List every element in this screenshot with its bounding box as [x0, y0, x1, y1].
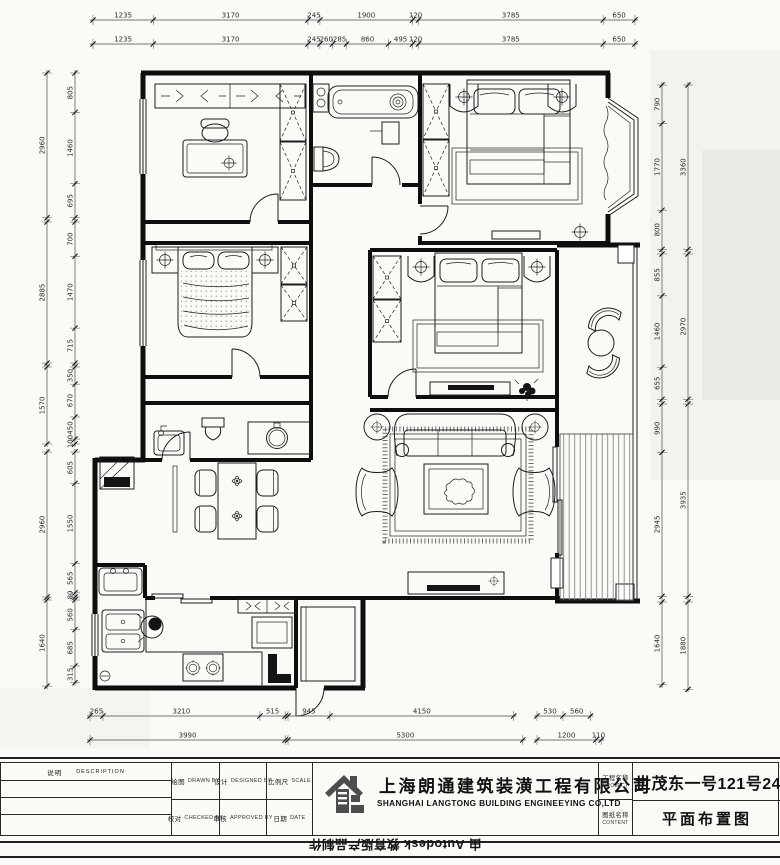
wok: [137, 614, 163, 642]
dim-label: 2885: [39, 284, 47, 302]
dim-chain-right: 2970: [680, 251, 694, 402]
project-content-label-cell: 工程名称 PROJECT 图纸名称 CONTENT: [599, 763, 633, 835]
dining-area: [100, 457, 278, 539]
dim-label: 1880: [680, 637, 688, 655]
balcony-post: [618, 245, 634, 263]
dim-chain-top: 123531702452602858604951203785650: [90, 36, 638, 50]
corner-sink: [313, 84, 329, 112]
dim-chain-right: 1880: [680, 599, 694, 692]
row-divider: [1, 780, 171, 781]
double-sink: [102, 610, 144, 652]
dim-label: 495: [394, 36, 407, 44]
dim-label: 805: [67, 86, 75, 99]
door-study: [250, 194, 278, 222]
kitchen-table: [252, 617, 292, 648]
drawn-checked-cell: 绘图 DRAWN BY 校对 CHECKED BY: [172, 763, 220, 835]
guest-bathroom: [154, 418, 310, 455]
dim-label: 1200: [557, 732, 575, 740]
title-block: 说明 DESCRIPTION 绘图 DRAWN BY 校对 CHECKED BY…: [0, 755, 780, 865]
walls: [95, 73, 640, 690]
dim-chain-left: 350670450100: [67, 364, 81, 448]
sofa: [394, 414, 515, 457]
nightstand-right: [252, 247, 278, 273]
dim-label: 790: [654, 98, 662, 111]
tv-console-bedroom3: [430, 382, 510, 395]
dim-label: 855: [654, 268, 662, 281]
dim-label: 655: [654, 377, 662, 390]
dim-label: 605: [67, 461, 75, 474]
dim-label: 990: [654, 422, 662, 435]
dim-label: 285: [333, 36, 346, 44]
bed-master: [467, 80, 570, 184]
entry-cabinet: [301, 607, 355, 681]
wardrobe-bedroom2: [281, 247, 307, 321]
dim-label: 1640: [39, 634, 47, 652]
dim-chain-left: 2885: [39, 219, 53, 366]
dim-chain-bottom: 5300: [285, 732, 526, 746]
dim-label: 1570: [39, 397, 47, 415]
dim-label: 1460: [654, 323, 662, 341]
dim-label: 695: [67, 194, 75, 207]
dim-label: 2960: [39, 516, 47, 534]
dim-label: 450: [67, 421, 75, 434]
floor-plan-svg: 1235317024519001203785650123531702452602…: [0, 0, 780, 755]
toilet-main: [314, 147, 339, 171]
dim-chain-left: 2960: [39, 449, 53, 600]
designed-approved-cell: 设计 DESIGNED BY 审核 APPROVED BY: [220, 763, 267, 835]
window-bedroom2: [140, 260, 146, 346]
toilet-guest: [202, 418, 224, 440]
dim-label: 3935: [680, 491, 688, 509]
dim-label: 700: [67, 232, 75, 245]
dining-chair: [195, 506, 216, 532]
door-bathroom-main: [372, 157, 400, 185]
dim-chain-left: 2960: [39, 70, 53, 221]
dim-label: 685: [67, 641, 75, 654]
dim-label: 1900: [357, 12, 375, 20]
dim-chain-left: 605155056580: [67, 449, 81, 600]
dim-chain-right: 9902945: [654, 401, 668, 599]
dim-label: 1640: [654, 634, 662, 652]
armchair-right: [513, 468, 555, 516]
dim-chain-bottom: 1200110: [534, 732, 605, 746]
dim-label: 3170: [222, 36, 240, 44]
approved-by-label: 审核: [213, 813, 227, 823]
description-label: 说明: [47, 767, 62, 777]
master-bedroom: [423, 80, 589, 241]
dim-label: 860: [361, 36, 374, 44]
company-cell: 上海朗通建筑装潢工程有限公司 SHANGHAI LANGTONG BUILDIN…: [313, 763, 599, 835]
description-cell: 说明 DESCRIPTION: [1, 763, 172, 835]
dim-chain-bottom: 3990: [87, 732, 288, 746]
dim-label: 3785: [502, 12, 520, 20]
desk: [183, 140, 247, 177]
door-bedroom3: [388, 369, 416, 397]
title-block-top-rule: [0, 757, 780, 759]
nightstand-right: [548, 84, 576, 112]
dining-table: [218, 463, 256, 539]
dim-label: 945: [302, 708, 315, 716]
wardrobe-study: [280, 84, 306, 200]
leisure-balcony: [584, 302, 625, 383]
dim-label: 530: [543, 708, 556, 716]
dim-chain-right: 1640: [654, 599, 668, 688]
laundry: [99, 568, 142, 595]
basin-counter: [248, 422, 310, 454]
dim-label: 100: [67, 435, 75, 448]
dim-chain-right: 3935: [680, 401, 694, 599]
coffee-table: [424, 464, 488, 514]
dim-label: 1460: [67, 139, 75, 157]
bed-2: [178, 247, 252, 337]
dim-label: 4150: [413, 708, 431, 716]
dim-label: 80: [67, 591, 75, 600]
dim-chain-top: 1235317024519001203785650: [90, 12, 638, 26]
side-table-left: [364, 414, 390, 440]
dim-label: 2960: [39, 136, 47, 154]
date-label-en: DATE: [290, 815, 305, 821]
dim-label: 1470: [67, 283, 75, 301]
vanity: [370, 122, 399, 144]
bench: [492, 231, 540, 239]
row-divider: [1, 814, 171, 815]
drawn-by-label: 绘图: [171, 776, 185, 786]
company-logo-icon: [323, 771, 371, 815]
dim-label: 110: [592, 732, 605, 740]
dining-chair: [195, 470, 216, 496]
floor-lamp: [572, 224, 589, 241]
dim-label: 2945: [654, 516, 662, 534]
dim-label: 2970: [680, 318, 688, 336]
dim-label: 1235: [114, 12, 132, 20]
dim-label: 1235: [114, 36, 132, 44]
dim-label: 3785: [502, 36, 520, 44]
project-label-en: PROJECT: [603, 783, 628, 789]
dim-label: 800: [654, 223, 662, 236]
floor-drain: [100, 671, 110, 681]
scale-label-en: SCALE: [291, 778, 311, 784]
date-label: 日期: [273, 813, 287, 823]
drawing-sheet: { "title_block": { "description_label": …: [0, 0, 780, 865]
dim-chain-right: 3360: [680, 82, 694, 252]
balcony-glazing: [633, 247, 637, 601]
lounge-chair: [584, 353, 624, 384]
dim-label: 120: [409, 36, 422, 44]
dim-label: 565: [67, 572, 75, 585]
upper-cabinets: [238, 599, 296, 613]
designed-by-label-en: DESIGNED BY: [231, 778, 272, 784]
dim-label: 120: [409, 12, 422, 20]
drawing-name: 平面布置图: [633, 800, 780, 837]
bed-3: [435, 253, 522, 353]
bedroom-3: [373, 253, 550, 401]
dim-label: 650: [612, 12, 625, 20]
content-label-en: CONTENT: [602, 820, 628, 826]
dim-label: 715: [67, 339, 75, 352]
watermark-rule-bottom: [0, 856, 780, 858]
door-guest-bath: [162, 432, 190, 460]
wardrobe-bedroom3: [373, 256, 401, 342]
dining-chair: [257, 470, 278, 496]
screen-partition: [173, 466, 177, 532]
bedroom-2: [152, 244, 307, 337]
bathroom-main: [313, 84, 418, 171]
sliding-door-kitchen: [152, 594, 212, 603]
nightstand-left: [152, 247, 178, 273]
dim-label: 3360: [680, 158, 688, 176]
dim-label: 3990: [179, 732, 197, 740]
row-divider: [1, 797, 171, 798]
dim-chain-right: 8551460655: [654, 251, 668, 402]
dim-label: 1770: [654, 158, 662, 176]
study-room: [155, 84, 306, 200]
deck-balcony: [560, 434, 633, 600]
dim-label: 1550: [67, 515, 75, 533]
window-study: [140, 99, 146, 174]
dim-label: 350: [67, 369, 75, 382]
dim-chain-right: 7901770800: [654, 82, 668, 252]
dim-chain-bottom: 9454150: [285, 708, 517, 722]
company-name-en: SHANGHAI LANGTONG BUILDING ENGINEEYING C…: [377, 799, 621, 808]
title-block-table: 说明 DESCRIPTION 绘图 DRAWN BY 校对 CHECKED BY…: [0, 762, 779, 836]
door-master-bedroom: [420, 206, 448, 234]
dim-chain-left: 560685315: [67, 597, 81, 686]
dim-chain-left: 8051460695: [67, 70, 81, 221]
wash-sink: [154, 426, 184, 455]
window-kitchen: [92, 614, 98, 656]
checked-by-label: 校对: [168, 813, 182, 823]
round-table: [588, 330, 614, 356]
bathtub: [328, 86, 418, 118]
dim-chain-bottom: 530560: [534, 708, 593, 722]
dim-label: 265: [90, 708, 103, 716]
nightstand-left: [408, 256, 434, 282]
armchair-left: [356, 468, 398, 516]
dimension-layer: 1235317024519001203785650123531702452602…: [39, 12, 694, 746]
content-label-cn: 图纸名称: [602, 810, 628, 819]
doors: [162, 157, 448, 716]
cabinet-row: [155, 84, 305, 108]
bay-window: [604, 98, 638, 216]
project-label-cn: 工程名称: [602, 773, 628, 782]
entry-hall: [301, 607, 355, 681]
door-bedroom2: [232, 349, 260, 377]
dim-label: 5300: [396, 732, 414, 740]
dim-chain-left: 1570: [39, 364, 53, 447]
dim-chain-left: 7001470715: [67, 219, 81, 366]
dim-label: 315: [67, 668, 75, 681]
scale-label: 比例尺: [268, 776, 288, 786]
dim-label: 515: [266, 708, 279, 716]
dim-label: 3210: [173, 708, 191, 716]
dim-label: 260: [320, 36, 333, 44]
autodesk-watermark: 由 Autodesk 教育版产品制作: [240, 839, 550, 855]
dim-label: 560: [67, 608, 75, 621]
dining-chair: [257, 506, 278, 532]
stove: [183, 654, 223, 681]
dim-label: 670: [67, 394, 75, 407]
dim-label: 245: [307, 12, 320, 20]
living-room: [356, 414, 555, 594]
dim-label: 650: [612, 36, 625, 44]
dim-label: 560: [570, 708, 583, 716]
rug-master: [452, 148, 582, 204]
wardrobe-master: [423, 84, 449, 196]
corner-bench: [268, 654, 291, 683]
lounge-chair: [584, 302, 624, 333]
nightstand-right: [524, 256, 550, 282]
desk-chair: [201, 119, 229, 142]
project-name: 世茂东一号121号2401室: [635, 763, 780, 800]
dim-chain-bottom: 2653210515: [87, 708, 288, 722]
tv-cabinet: [408, 572, 504, 594]
dim-label: 3170: [222, 12, 240, 20]
dim-chain-left: 1640: [39, 597, 53, 689]
description-label-en: DESCRIPTION: [76, 769, 125, 775]
scale-date-cell: 比例尺 SCALE 日期 DATE: [267, 763, 313, 835]
kitchen: [100, 599, 296, 688]
designed-by-label: 设计: [214, 776, 228, 786]
